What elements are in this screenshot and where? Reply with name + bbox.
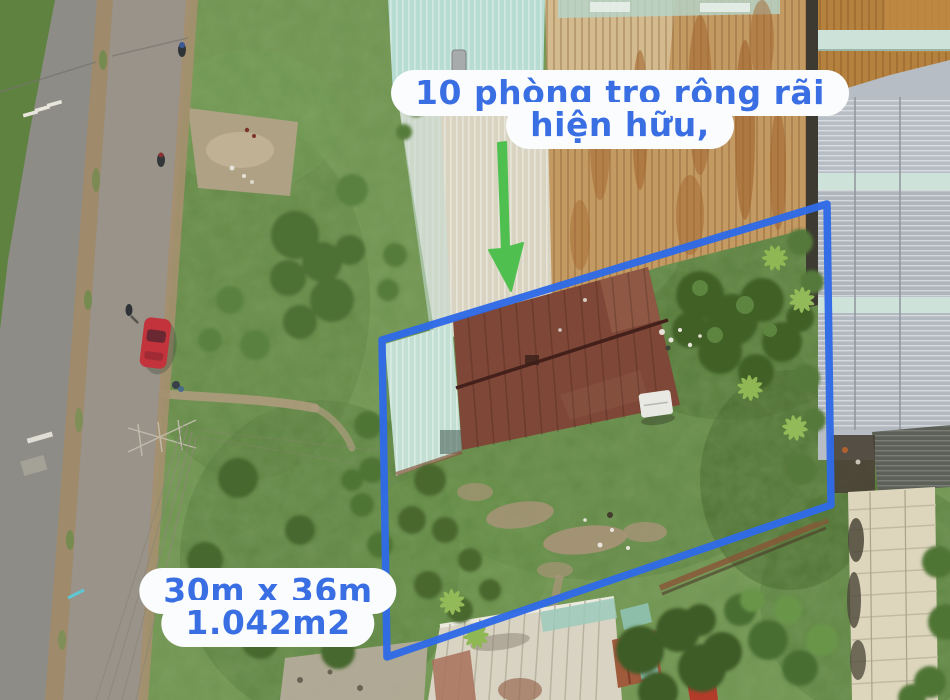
alley-gap <box>806 0 818 308</box>
white-shed <box>637 390 675 427</box>
warehouse-right <box>818 0 950 493</box>
aerial-photo <box>0 0 950 700</box>
aerial-photo-stage: 10 phòng trọ rộng rãi hiện hữu, 30m x 36… <box>0 0 950 700</box>
